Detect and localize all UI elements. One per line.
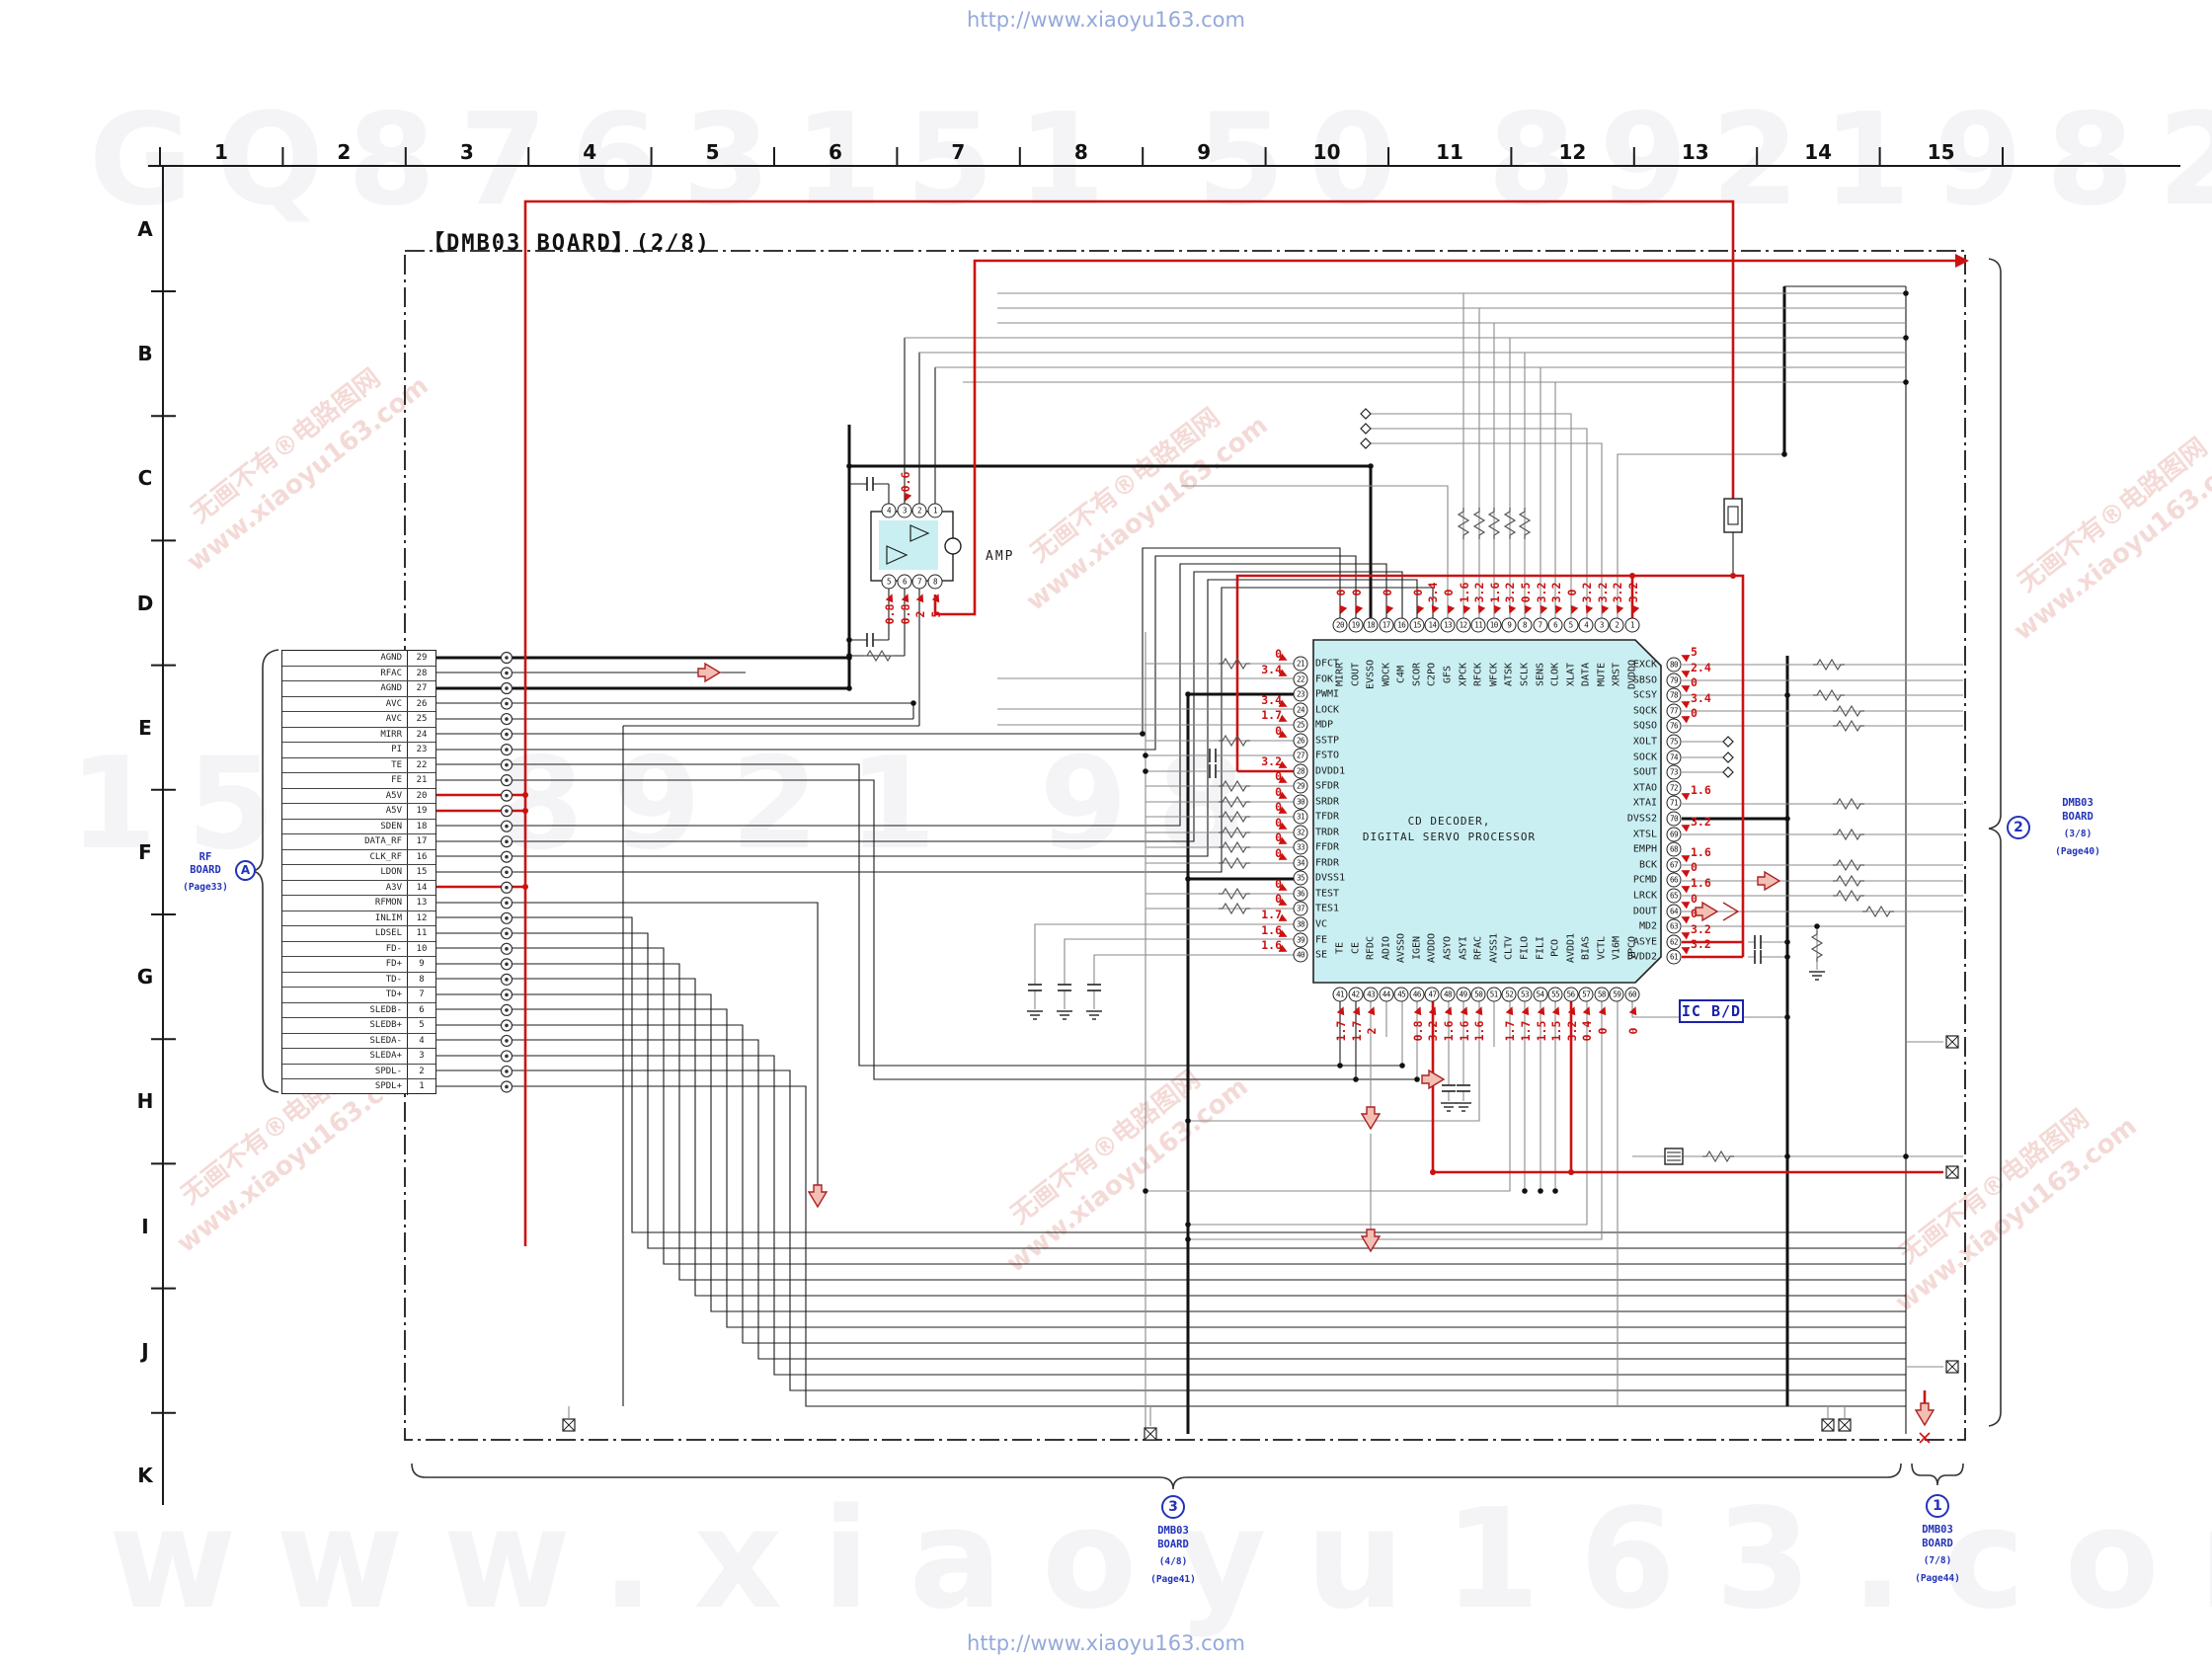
ic-pin-value: 3.2 [1691,922,1711,936]
ic-pin-value: 0 [1691,675,1698,689]
ic-pin-6: 6 [1548,618,1563,633]
connector-pin-number: 24 [407,728,435,743]
connector-pin-number: 5 [407,1018,435,1033]
ic-pin-36: 36 [1294,886,1308,901]
ic-pin-44: 44 [1379,988,1393,1002]
connector-pin-number: 27 [407,681,435,696]
grid-col-label-7: 7 [951,140,965,164]
ref3-line4: (Page41) [1122,1573,1224,1587]
connector-pin-number: 1 [407,1079,435,1095]
ic-pin-value: 1.6 [1691,783,1711,797]
connector-row-SLEDA+: SLEDA+3 [282,1049,435,1065]
connector-pin-name: A5V [282,804,407,819]
ic-pin-label-XTAI: XTAI [1586,798,1657,809]
ic-pin-b8: 8 [928,575,943,590]
ic-pin-38: 38 [1294,917,1308,932]
ic-pin-59: 59 [1610,988,1624,1002]
ic-pin-39: 39 [1294,932,1308,947]
connector-row-A5V: A5V19 [282,804,435,820]
ic-pin-34: 34 [1294,855,1308,870]
amp-label: AMP [986,549,1014,564]
ic-pin-value: 0 [1565,590,1579,596]
ic-pin-value: 0 [1381,590,1394,596]
ic-pin-value: 0 [1350,590,1364,596]
connector-pin-number: 19 [407,804,435,819]
grid-col-label-14: 14 [1804,140,1832,164]
ic-pin-label-SOCK: SOCK [1586,752,1657,762]
connector-pin-name: SPDL+ [282,1079,407,1095]
grid-row-label-F: F [128,840,162,864]
ic-pin-64: 64 [1667,904,1682,918]
ic-pin-value: 1.5 [1549,1021,1563,1042]
ic-pin-28: 28 [1294,763,1308,778]
ic-pin-label-AVSS1: AVSS1 [1488,933,1499,963]
ic-pin-8: 8 [1517,618,1532,633]
rf-board-line2: BOARD [174,864,237,877]
ic-pin-value: 1.7 [1350,1021,1364,1042]
connector-pin-number: 4 [407,1034,435,1049]
ic-pin-label-ASYE: ASYE [1586,936,1657,947]
connector-pin-name: A5V [282,789,407,804]
ic-pin-22: 22 [1294,672,1308,686]
ic-pin-value: 0 [1596,1028,1610,1035]
ic-pin-label-EVSSO: EVSSO [1366,660,1377,689]
connector-pin-number: 25 [407,712,435,727]
ic-pin-label-DFCT: DFCT [1315,659,1339,670]
connector-pin-name: A3V [282,881,407,896]
ic-pin-label-AVDD1: AVDD1 [1565,933,1576,963]
ic-pin-label-ASYI: ASYI [1458,936,1468,960]
ic-pin-49: 49 [1456,988,1470,1002]
connector-pin-name: FE [282,773,407,788]
ic-pin-label-XTSL: XTSL [1586,829,1657,839]
ic-pin-32: 32 [1294,825,1308,839]
connector-row-AVC: AVC25 [282,712,435,728]
ref2-label: DMB03 BOARD (3/8) (Page40) [2034,796,2121,859]
ic-pin-66: 66 [1667,873,1682,888]
ic-title-line2: DIGITAL SERVO PROCESSOR [1333,830,1565,845]
connector-pin-name: AVC [282,712,407,727]
connector-pin-number: 3 [407,1049,435,1064]
connector-row-RFMON: RFMON13 [282,896,435,911]
connector-row-FE: FE21 [282,773,435,789]
ic-pin-label-C4M: C4M [1396,666,1407,683]
connector-pin-name: FD+ [282,957,407,972]
connector-pin-number: 18 [407,820,435,834]
grid-row-label-G: G [128,965,162,989]
ic-pin-3: 3 [1594,618,1609,633]
ref1-line1: DMB03 [1886,1523,1989,1537]
connector-pin-number: 26 [407,697,435,712]
ic-pin-value: 0 [1691,892,1698,906]
ic-pin-label-SCOR: SCOR [1411,663,1422,686]
connector-row-AGND: AGND27 [282,681,435,697]
ic-pin-label-SRDR: SRDR [1315,796,1339,807]
connector-row-AVC: AVC26 [282,697,435,713]
grid-row-label-I: I [128,1215,162,1238]
grid-col-label-3: 3 [460,140,474,164]
connector-pin-name: SDEN [282,820,407,834]
ic-pin-value: 1.6 [1442,1021,1456,1042]
ic-pin-value: 1.6 [1217,938,1282,952]
ic-pin-value: 1.6 [1217,923,1282,937]
rf-board-label: RF BOARD (Page33) [174,851,237,894]
ic-pin-55: 55 [1548,988,1563,1002]
ic-pin-24: 24 [1294,702,1308,717]
connector-pin-name: MIRR [282,728,407,743]
connector-row-A5V: A5V20 [282,789,435,805]
ic-pin-label-XPCK: XPCK [1458,663,1468,686]
ic-pin-77: 77 [1667,703,1682,718]
ic-designator-badge: IC B/D [1679,999,1744,1023]
connector-row-FD+: FD+9 [282,957,435,973]
connector-pin-name: TD- [282,973,407,988]
ic-pin-52: 52 [1502,988,1517,1002]
ic-pin-42: 42 [1348,988,1363,1002]
connector-row-AGND: AGND29 [282,651,435,667]
grid-row-label-D: D [128,592,162,615]
ic-pin-56: 56 [1563,988,1578,1002]
ic-pin-label-SBSO: SBSO [1586,674,1657,685]
ic-pin-label-C2PO: C2PO [1427,663,1438,686]
connector-row-TD+: TD+7 [282,988,435,1003]
ic-pin-label-SENS: SENS [1535,663,1545,686]
ic-pin-label-MDP: MDP [1315,720,1333,731]
grid-col-label-12: 12 [1558,140,1586,164]
ic-pin-value: 1.6 [1458,583,1471,603]
ic-pin-41: 41 [1333,988,1348,1002]
ic-pin-63: 63 [1667,919,1682,934]
ref1-badge: 1 [1926,1494,1949,1518]
ic-pin-16: 16 [1394,618,1409,633]
ref2-line1: DMB03 [2034,796,2121,810]
amp-pin-value: 0.8 [883,604,897,625]
ic-pin-label-SQCK: SQCK [1586,705,1657,716]
ic-pin-value: 0 [1217,724,1282,738]
connector-row-CLK_RF: CLK_RF16 [282,850,435,866]
ic-pin-value: 0 [1442,590,1456,596]
connector-pin-number: 20 [407,789,435,804]
ref2-line4: (Page40) [2034,845,2121,859]
ic-pin-value: 2 [1365,1028,1379,1035]
connector-pin-name: SLEDB- [282,1003,407,1018]
amp-pin-value: 0.6 [899,472,912,493]
ref3-label: DMB03 BOARD (4/8) (Page41) [1122,1524,1224,1587]
ic-pin-value: 0 [1217,846,1282,860]
ic-pin-label-FSTO: FSTO [1315,751,1339,761]
connector-pin-name: SLEDB+ [282,1018,407,1033]
ic-pin-25: 25 [1294,718,1308,733]
ic-title-line1: CD DECODER, [1333,814,1565,830]
amp-pin-value: 2 [913,611,927,618]
connector-pin-number: 23 [407,743,435,757]
ic-pin-label-FILI: FILI [1535,936,1545,960]
ic-pin-4: 4 [1579,618,1594,633]
connector-pin-number: 11 [407,926,435,941]
ic-pin-30: 30 [1294,794,1308,809]
ref1-line4: (Page44) [1886,1572,1989,1586]
connector-pin-name: PI [282,743,407,757]
connector-pin-name: CLK_RF [282,850,407,865]
connector-row-INLIM: INLIM12 [282,911,435,927]
ic-pin-value: 3.2 [1611,583,1624,603]
grid-row-label-J: J [128,1339,162,1363]
ic-pin-label-SQSO: SQSO [1586,721,1657,732]
connector-pin-number: 14 [407,881,435,896]
connector-pin-number: 10 [407,942,435,957]
ic-pin-label-ATSK: ATSK [1504,663,1515,686]
ic-pin-53: 53 [1517,988,1532,1002]
connector-row-SPDL-: SPDL-2 [282,1065,435,1080]
ic-pin-value: 3.2 [1565,1021,1579,1042]
ic-pin-11: 11 [1471,618,1486,633]
connector-row-MIRR: MIRR24 [282,728,435,744]
ic-pin-value: 1.7 [1217,708,1282,722]
ic-pin-label-DVDD1: DVDD1 [1315,765,1345,776]
ic-pin-label-TEST: TEST [1315,888,1339,899]
ic-pin-label-SOUT: SOUT [1586,767,1657,778]
ic-pin-label-SCSY: SCSY [1586,690,1657,701]
connector-pin-number: 7 [407,988,435,1002]
connector-row-SDEN: SDEN18 [282,820,435,835]
ic-pin-label-SSTP: SSTP [1315,735,1339,746]
ic-pin-label-TFDR: TFDR [1315,812,1339,823]
connector-pin-name: FD- [282,942,407,957]
ic-pin-14: 14 [1425,618,1440,633]
connector-row-A3V: A3V14 [282,881,435,897]
amp-pin-value: 0.8 [899,604,912,625]
grid-col-label-2: 2 [337,140,351,164]
ic-pin-1: 1 [1625,618,1640,633]
grid-col-label-8: 8 [1074,140,1088,164]
ic-pin-value: 3.2 [1691,937,1711,951]
schematic-page: { "page": { "watermark_top": "http://www… [0,0,2212,1663]
ic-pin-value: 3.4 [1217,663,1282,676]
grid-col-label-15: 15 [1928,140,1955,164]
connector-pin-name: TE [282,758,407,773]
connector-row-TD-: TD-8 [282,973,435,989]
ref1-line2: BOARD [1886,1537,1989,1550]
ic-pin-value: 3.2 [1691,815,1711,829]
ic-pin-value: 0 [1217,892,1282,906]
ic-pin-45: 45 [1394,988,1409,1002]
ic-pin-value: 1.6 [1472,1021,1486,1042]
ic-pin-value: 3.2 [1549,583,1563,603]
grid-row-label-B: B [128,342,162,365]
grid-col-label-1: 1 [214,140,228,164]
board-title: 【DMB03 BOARD】(2/8) [423,225,711,257]
ic-pin-label-CE: CE [1350,942,1361,954]
ic-pin-12: 12 [1456,618,1470,633]
ic-pin-label-CLOK: CLOK [1550,663,1561,686]
ic-pin-47: 47 [1425,988,1440,1002]
ic-pin-label-FRDR: FRDR [1315,857,1339,868]
connector-pin-name: DATA_RF [282,834,407,849]
ic-pin-a2: 2 [912,504,927,518]
connector-row-SPDL+: SPDL+1 [282,1079,435,1095]
ic-pin-label-TRDR: TRDR [1315,827,1339,837]
ic-pin-label-AVSSO: AVSSO [1396,933,1407,963]
rf-board-page: (Page33) [174,881,237,894]
ic-pin-value: 3.2 [1596,583,1610,603]
connector-row-LDSEL: LDSEL11 [282,926,435,942]
ref1-label: DMB03 BOARD (7/8) (Page44) [1886,1523,1989,1586]
ic-pin-72: 72 [1667,780,1682,795]
ic-pin-label-ADIO: ADIO [1381,936,1391,960]
ic-pin-value: 0.5 [1519,583,1533,603]
ic-pin-value: 3.4 [1691,691,1711,705]
ic-pin-label-XOLT: XOLT [1586,737,1657,748]
rf-board-line1: RF [174,851,237,864]
ic-pin-value: 0.8 [1411,1021,1425,1042]
ic-pin-value: 1.5 [1535,1021,1548,1042]
ic-pin-label-EMPH: EMPH [1586,844,1657,855]
ic-pin-value: 1.6 [1691,845,1711,859]
ic-pin-label-FE: FE [1315,934,1327,945]
ic-pin-label-TE: TE [1335,942,1346,954]
ic-pin-value: 3.2 [1426,1021,1440,1042]
ic-pin-71: 71 [1667,796,1682,811]
ic-pin-48: 48 [1441,988,1456,1002]
grid-col-label-13: 13 [1682,140,1709,164]
ic-pin-label-EXCK: EXCK [1586,660,1657,671]
ic-pin-value: 0 [1217,785,1282,799]
ic-pin-68: 68 [1667,842,1682,857]
connector-pin-number: 17 [407,834,435,849]
ic-pin-label-IGEN: IGEN [1411,936,1422,960]
ic-pin-label-XTAO: XTAO [1586,782,1657,793]
ic-pin-label-WDCK: WDCK [1381,663,1391,686]
connector-pin-name: RFAC [282,667,407,681]
ref2-line3: (3/8) [2034,828,2121,841]
ic-pin-label-GFS: GFS [1443,666,1454,683]
connector-pin-name: AGND [282,651,407,666]
ic-pin-label-SE: SE [1315,950,1327,961]
ic-pin-label-DVSS1: DVSS1 [1315,873,1345,884]
ic-pin-value: 0.4 [1580,1021,1594,1042]
ic-pin-29: 29 [1294,779,1308,794]
connector-pin-name: LDSEL [282,926,407,941]
connector-pin-number: 29 [407,651,435,666]
ic-pin-19: 19 [1348,618,1363,633]
connector-row-LDON: LDON15 [282,865,435,881]
rf-connector: AGND29RFAC28AGND27AVC26AVC25MIRR24PI23TE… [281,650,436,1094]
ic-pin-label-LOCK: LOCK [1315,704,1339,715]
ic-pin-value: 5 [1691,645,1698,659]
grid-row-label-A: A [128,217,162,241]
ic-pin-61: 61 [1667,950,1682,965]
connector-pin-name: SLEDA+ [282,1049,407,1064]
amp-pin-value: 5 [929,611,943,618]
grid-row-label-K: K [128,1464,162,1487]
connector-pin-number: 8 [407,973,435,988]
ic-pin-75: 75 [1667,735,1682,750]
ic-pin-51: 51 [1486,988,1501,1002]
connector-pin-number: 22 [407,758,435,773]
connector-row-SLEDB-: SLEDB-6 [282,1003,435,1019]
ic-pin-value: 0 [1217,831,1282,844]
ic-pin-b5: 5 [882,575,897,590]
ic-pin-80: 80 [1667,658,1682,673]
ic-pin-label-SFDR: SFDR [1315,781,1339,792]
ic-pin-value: 1.6 [1691,876,1711,890]
ic-pin-value: 0 [1217,877,1282,891]
ic-pin-value: 1.7 [1217,908,1282,921]
connector-pin-name: INLIM [282,911,407,926]
ic-pin-value: 1.7 [1519,1021,1533,1042]
connector-row-SLEDA-: SLEDA-4 [282,1034,435,1050]
connector-row-FD-: FD-10 [282,942,435,958]
ic-pin-value: 3.4 [1217,693,1282,707]
ic-pin-value: 3.2 [1626,583,1640,603]
grid-col-label-9: 9 [1197,140,1211,164]
ic-pin-7: 7 [1533,618,1547,633]
ic-pin-43: 43 [1364,988,1379,1002]
ic-pin-value: 0 [1691,907,1698,920]
ic-pin-label-RFDC: RFDC [1366,936,1377,960]
ic-pin-50: 50 [1471,988,1486,1002]
connector-pin-number: 16 [407,850,435,865]
ic-pin-70: 70 [1667,812,1682,827]
ic-pin-value: 1.7 [1503,1021,1517,1042]
connector-pin-number: 6 [407,1003,435,1018]
ref2-line2: BOARD [2034,810,2121,824]
ic-pin-46: 46 [1409,988,1424,1002]
connector-pin-name: TD+ [282,988,407,1002]
connector-pin-number: 28 [407,667,435,681]
ic-pin-label-XLAT: XLAT [1565,663,1576,686]
ic-pin-label-ASYO: ASYO [1443,936,1454,960]
ic-pin-a4: 4 [882,504,897,518]
ic-pin-label-FFDR: FFDR [1315,842,1339,853]
connector-pin-number: 9 [407,957,435,972]
ic-pin-label-COUT: COUT [1350,663,1361,686]
ic-pin-57: 57 [1579,988,1594,1002]
ic-pin-value: 0 [1217,647,1282,661]
ic-pin-18: 18 [1364,618,1379,633]
ic-pin-value: 3.2 [1580,583,1594,603]
connector-row-TE: TE22 [282,758,435,774]
connector-pin-number: 12 [407,911,435,926]
ic-pin-label-PCO: PCO [1550,939,1561,957]
ic-pin-65: 65 [1667,889,1682,904]
ic-pin-67: 67 [1667,857,1682,872]
ref1-line3: (7/8) [1886,1554,1989,1568]
ic-pin-26: 26 [1294,733,1308,748]
ic-pin-21: 21 [1294,657,1308,672]
connector-pin-name: LDON [282,865,407,880]
grid-col-label-11: 11 [1436,140,1463,164]
connector-row-DATA_RF: DATA_RF17 [282,834,435,850]
ref2-badge: 2 [2007,816,2030,839]
ic-pin-value: 3.2 [1503,583,1517,603]
ic-pin-value: 3.2 [1217,754,1282,768]
ic-title: CD DECODER, DIGITAL SERVO PROCESSOR [1333,814,1565,845]
ic-pin-2: 2 [1610,618,1624,633]
ic-pin-label-PCMD: PCMD [1586,875,1657,886]
connector-pin-name: RFMON [282,896,407,911]
ic-pin-78: 78 [1667,688,1682,703]
connector-pin-name: AVC [282,697,407,712]
grid-row-label-E: E [128,716,162,740]
ic-pin-a3: 3 [898,504,912,518]
ic-pin-9: 9 [1502,618,1517,633]
ic-pin-73: 73 [1667,765,1682,780]
ic-pin-label-PWMI: PWMI [1315,689,1339,700]
connector-pin-name: SLEDA- [282,1034,407,1049]
grid-col-label-6: 6 [829,140,842,164]
ic-pin-value: 0 [1334,590,1348,596]
